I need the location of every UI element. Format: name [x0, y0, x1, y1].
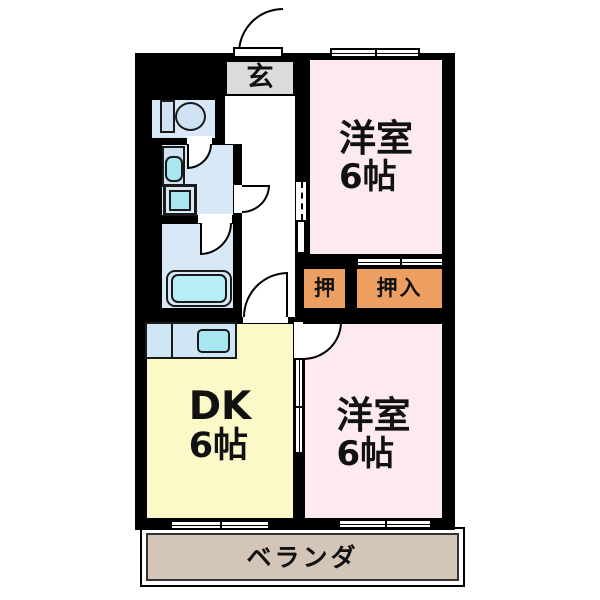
veranda-label: ベランダ [246, 544, 358, 571]
window-bedroom-bottom [338, 519, 432, 529]
wash-basin-icon [165, 156, 183, 182]
floor-plan: ベランダ 玄 洋室 6帖 押 押入 洋室 6帖 DK 6帖 [0, 0, 600, 600]
closet-oshiire: 押入 [355, 267, 444, 310]
closet-oshi-label: 押 [314, 277, 335, 300]
window-top [330, 48, 420, 58]
room-bedroom-top: 洋室 6帖 [308, 58, 444, 256]
veranda-area: ベランダ [140, 527, 465, 587]
dk-name: DK [189, 386, 252, 428]
bedroom-top-door-track [296, 182, 306, 220]
toilet-tank-icon [160, 100, 175, 133]
kitchen-counter-divider [171, 322, 173, 359]
genkan-label: 玄 [247, 63, 274, 92]
kitchen-sink-icon [197, 329, 230, 353]
hallway-upper [225, 96, 295, 144]
room-genkan: 玄 [225, 60, 295, 96]
closet-oshi: 押 [302, 267, 347, 310]
window-dk-bottom [170, 520, 270, 530]
veranda-floor: ベランダ [146, 533, 459, 581]
bedroom-bottom-name: 洋室 [337, 396, 411, 436]
bathtub-inner-icon [171, 274, 227, 303]
gap-bath-door [198, 214, 232, 223]
dk-bedroom-partition [294, 358, 304, 454]
gap-dk-door [243, 316, 288, 323]
bedroom-top-door-panel [296, 220, 306, 254]
dk-size: 6帖 [189, 428, 252, 466]
entry-door-leaf [233, 47, 283, 58]
bedroom-bottom-size: 6帖 [337, 436, 411, 473]
oshiire-sliding-door [356, 257, 444, 267]
bedroom-top-size: 6帖 [339, 159, 413, 196]
bedroom-top-name: 洋室 [339, 119, 413, 159]
laundry-pan-inner-icon [169, 190, 191, 211]
toilet-bowl-icon [175, 102, 206, 131]
closet-oshiire-label: 押入 [377, 277, 423, 300]
